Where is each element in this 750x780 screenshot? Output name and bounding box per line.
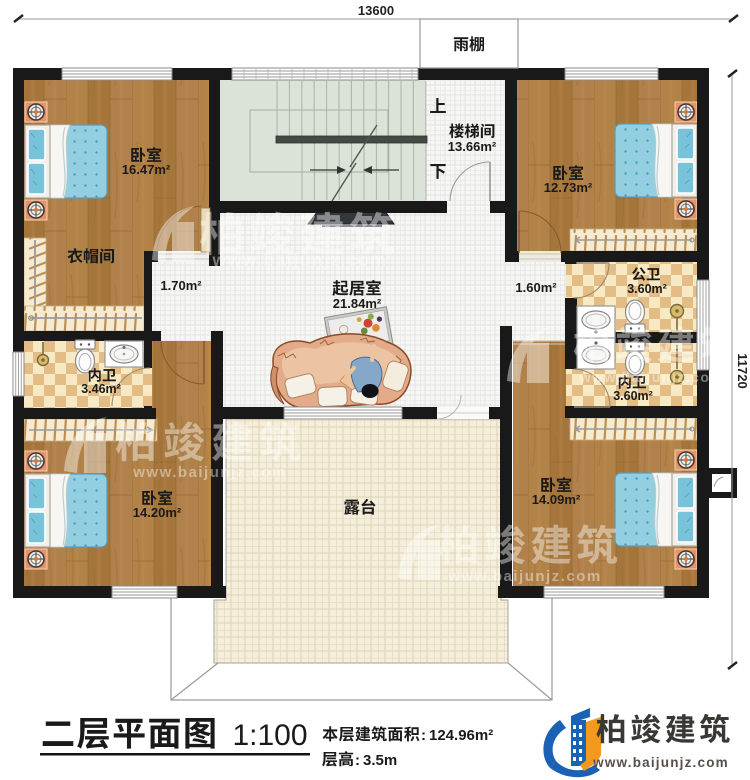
svg-text:12.73m²: 12.73m² bbox=[544, 180, 593, 195]
svg-text::: : bbox=[421, 727, 426, 744]
svg-text:www.baijunjz.com: www.baijunjz.com bbox=[579, 369, 725, 385]
svg-text::: : bbox=[355, 752, 360, 769]
svg-text:1.70m²: 1.70m² bbox=[160, 278, 202, 293]
svg-text:3.60m²: 3.60m² bbox=[627, 282, 667, 296]
svg-text:www.baijunjz.com: www.baijunjz.com bbox=[132, 464, 286, 481]
svg-text:www.baijunjz.com: www.baijunjz.com bbox=[592, 755, 729, 770]
svg-text:3.5m: 3.5m bbox=[363, 752, 397, 769]
svg-text:1:100: 1:100 bbox=[232, 719, 307, 752]
svg-text:www.baijunjz.com: www.baijunjz.com bbox=[447, 568, 601, 585]
svg-text:14.09m²: 14.09m² bbox=[532, 492, 581, 507]
svg-text:3.46m²: 3.46m² bbox=[81, 382, 121, 396]
svg-text:13600: 13600 bbox=[358, 3, 394, 18]
svg-text:14.20m²: 14.20m² bbox=[133, 505, 182, 520]
svg-text:11720: 11720 bbox=[735, 353, 750, 388]
svg-text:3.60m²: 3.60m² bbox=[613, 389, 653, 403]
svg-text:21.84m²: 21.84m² bbox=[333, 296, 382, 311]
svg-text:124.96m²: 124.96m² bbox=[429, 727, 493, 744]
svg-text:16.47m²: 16.47m² bbox=[122, 162, 171, 177]
svg-text:13.66m²: 13.66m² bbox=[448, 139, 497, 154]
svg-text:1.60m²: 1.60m² bbox=[515, 280, 557, 295]
svg-text:www.baijunjz.com: www.baijunjz.com bbox=[211, 250, 387, 270]
